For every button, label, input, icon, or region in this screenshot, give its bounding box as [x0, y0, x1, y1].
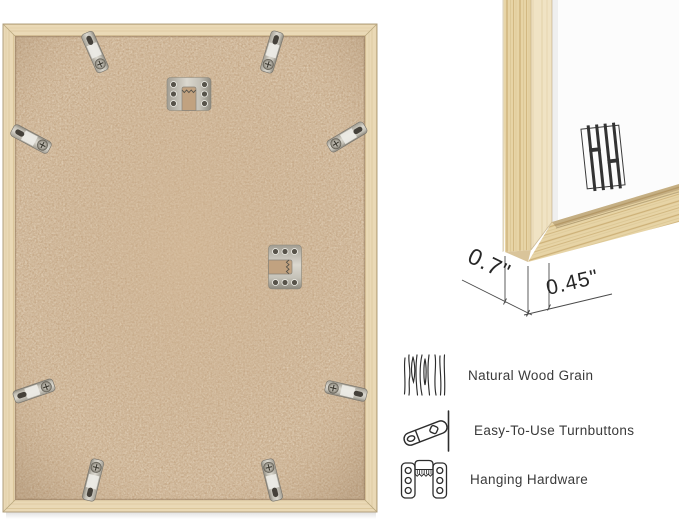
- wood-grain-icon: [398, 352, 448, 398]
- frame-back-photo: [0, 0, 381, 523]
- sawtooth-hanger-top: [167, 78, 211, 111]
- frame-shadow: [6, 512, 376, 519]
- product-infographic: 0.7" 0.45" Natural Wood Grain: [0, 0, 679, 523]
- turnbutton-icon: [398, 406, 454, 454]
- hanging-hardware-icon: [398, 454, 450, 504]
- feature-hanging-hardware: Hanging Hardware: [398, 454, 588, 504]
- feature-label: Natural Wood Grain: [468, 368, 593, 383]
- feature-label: Hanging Hardware: [470, 472, 588, 487]
- mat-surface: [552, 0, 679, 222]
- sawtooth-hanger-side: [269, 245, 302, 289]
- feature-label: Easy-To-Use Turnbuttons: [474, 423, 634, 438]
- corner-detail-photo: 0.7" 0.45": [440, 0, 679, 330]
- face-width-dimension-label: 0.45": [544, 265, 601, 299]
- feature-wood-grain: Natural Wood Grain: [398, 352, 593, 398]
- feature-turnbuttons: Easy-To-Use Turnbuttons: [398, 406, 634, 454]
